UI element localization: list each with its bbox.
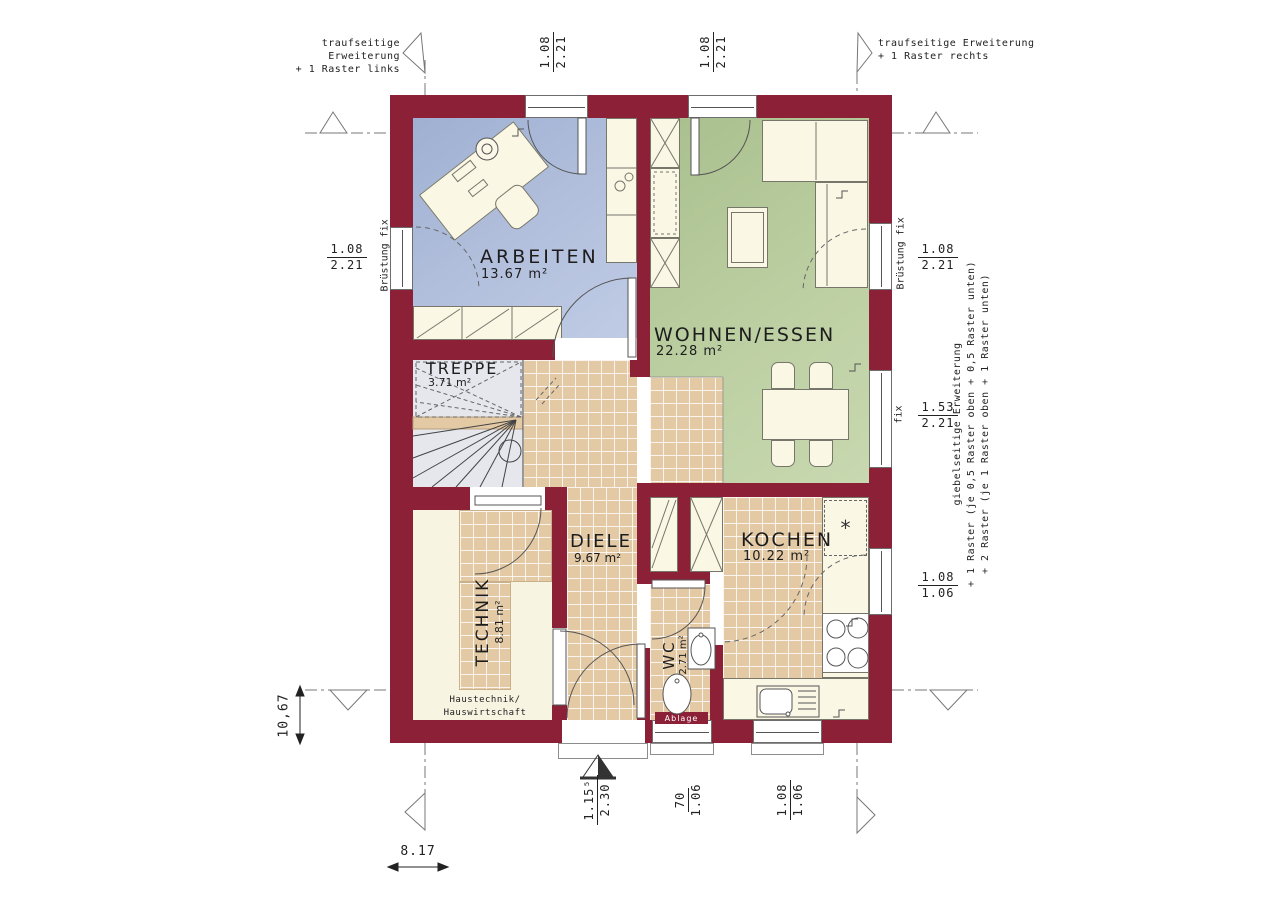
room-area-kochen: 10.22 m²: [743, 549, 810, 564]
marker-left-bottom: [330, 690, 367, 710]
room-label-wc: WC: [660, 640, 678, 669]
dining-chair-2: [809, 362, 833, 389]
coffee-table-inner: [731, 212, 764, 263]
dim-window-top-left: 1.08 2.21: [536, 26, 570, 78]
dim-window-right-lower: 1.08 1.06: [912, 568, 964, 602]
wall-right-2: [869, 290, 892, 370]
dining-chair-1: [771, 362, 795, 389]
dim-entry-door: 1.15⁵ 2.30: [580, 774, 614, 826]
wall-top-2: [588, 95, 688, 118]
window-top-wohnen: [688, 95, 757, 118]
room-label-wohnen-essen: WOHNEN/ESSEN: [654, 324, 835, 346]
arbeiten-cabinet: [606, 118, 637, 263]
room-floor-diele-corridor: [650, 377, 723, 483]
entry-door-sill: [558, 743, 648, 759]
wall-left-1: [390, 95, 413, 227]
room-area-wohnen-essen: 22.28 m²: [656, 344, 723, 359]
note-haustechnik: Haustechnik/ Hauswirtschaft: [420, 694, 550, 720]
wall-bottom-1: [390, 720, 562, 743]
wohnen-lowboard: [650, 168, 680, 238]
dining-chair-4: [809, 440, 833, 467]
dim-window-right-upper: 1.08 2.21: [912, 240, 964, 274]
door-opening-arbeiten: [555, 338, 637, 360]
window-top-arbeiten: [525, 95, 588, 118]
entry-door-opening: [562, 720, 645, 743]
closet-1: [650, 497, 678, 572]
wall-bottom-3: [712, 720, 753, 743]
note-bruestung-right: Brüstung fix: [896, 218, 907, 290]
window-right-wohnen: [869, 223, 892, 290]
dim-total-depth: 10,67: [277, 681, 292, 751]
dim-window-kitchen: 1.08 1.06: [773, 774, 807, 826]
room-floor-diele-upper: [523, 360, 637, 487]
dim-total-width: 8.17: [390, 845, 446, 858]
note-bruestung-left: Brüstung fix: [380, 220, 391, 292]
wall-wc-left-upper: [637, 483, 650, 584]
sofa-horizontal: [762, 120, 868, 182]
kitchen-window-sill: [751, 743, 824, 755]
window-left-arbeiten: [390, 227, 413, 290]
marker-right-top: [923, 112, 950, 133]
note-fix-right: fix: [894, 400, 905, 430]
room-label-wc-group: WC 2.71 m²: [657, 610, 691, 700]
dim-window-right-mid: 1.53 2.21: [912, 398, 964, 432]
room-area-technik: 8.81 m²: [493, 600, 506, 643]
kitchen-counter-bottom: [723, 678, 869, 720]
wc-shelf-ablage: Ablage: [655, 712, 708, 724]
marker-bottom-left: [405, 793, 425, 830]
room-label-diele: DIELE: [570, 531, 632, 552]
marker-top-right-note: [857, 33, 872, 72]
dim-window-left: 1.08 2.21: [321, 240, 373, 274]
marker-top-left-note: [403, 33, 425, 73]
note-top-right: traufseitige Erweiterung + 1 Raster rech…: [878, 37, 1038, 63]
door-leaf-technik-2: [553, 629, 566, 705]
room-label-kochen: KOCHEN: [741, 529, 833, 551]
door-opening-technik: [470, 487, 545, 510]
room-area-treppe: 3.71 m²: [428, 376, 471, 389]
window-right-essen-fix: [869, 370, 892, 468]
marker-bottom-right: [857, 797, 875, 833]
room-label-technik: TECHNIK: [473, 578, 493, 667]
sofa-vertical: [815, 182, 868, 288]
wall-technik-top: [390, 487, 470, 510]
wc-window-sill: [650, 743, 714, 755]
room-label-arbeiten: ARBEITEN: [480, 246, 599, 268]
wall-wc-left-lower: [637, 648, 650, 720]
wall-right-3: [869, 468, 892, 548]
stove: [822, 613, 869, 673]
dim-window-wc: 70 1.06: [671, 774, 705, 826]
wall-technik-diele-2: [552, 705, 567, 720]
wall-kochen-left-lower: [710, 645, 723, 720]
arbeiten-shelf: [413, 306, 562, 340]
marker-right-bottom: [930, 690, 967, 710]
wall-wohnen-kochen: [650, 483, 869, 497]
wall-closet-divider: [678, 497, 690, 572]
note-top-left: traufseitige Erweiterung + 1 Raster link…: [272, 37, 400, 76]
wohnen-wardrobe-bottom: [650, 238, 680, 288]
dining-table: [762, 389, 849, 440]
dim-window-top-right: 1.08 2.21: [696, 26, 730, 78]
wall-right-1: [869, 95, 892, 223]
window-bottom-kochen: [753, 720, 822, 743]
room-area-wc: 2.71 m²: [678, 635, 689, 674]
wall-arbeiten-bottom: [390, 338, 555, 360]
wall-bottom-2: [645, 720, 652, 743]
room-area-diele: 9.67 m²: [574, 551, 621, 565]
window-right-kochen: [869, 548, 892, 615]
wall-technik-diele: [552, 510, 567, 628]
marker-left-top: [320, 112, 347, 133]
room-floor-diele-lower: [567, 487, 637, 720]
wall-technik-top-2: [545, 487, 567, 510]
wohnen-wardrobe-top: [650, 118, 680, 168]
closet-2: [690, 497, 723, 572]
room-area-arbeiten: 13.67 m²: [481, 267, 548, 282]
room-label-technik-group: TECHNIK 8.81 m²: [469, 562, 509, 682]
dining-chair-3: [771, 440, 795, 467]
wall-right-4: [869, 615, 892, 743]
floor-plan: * Ablage: [0, 0, 1280, 905]
